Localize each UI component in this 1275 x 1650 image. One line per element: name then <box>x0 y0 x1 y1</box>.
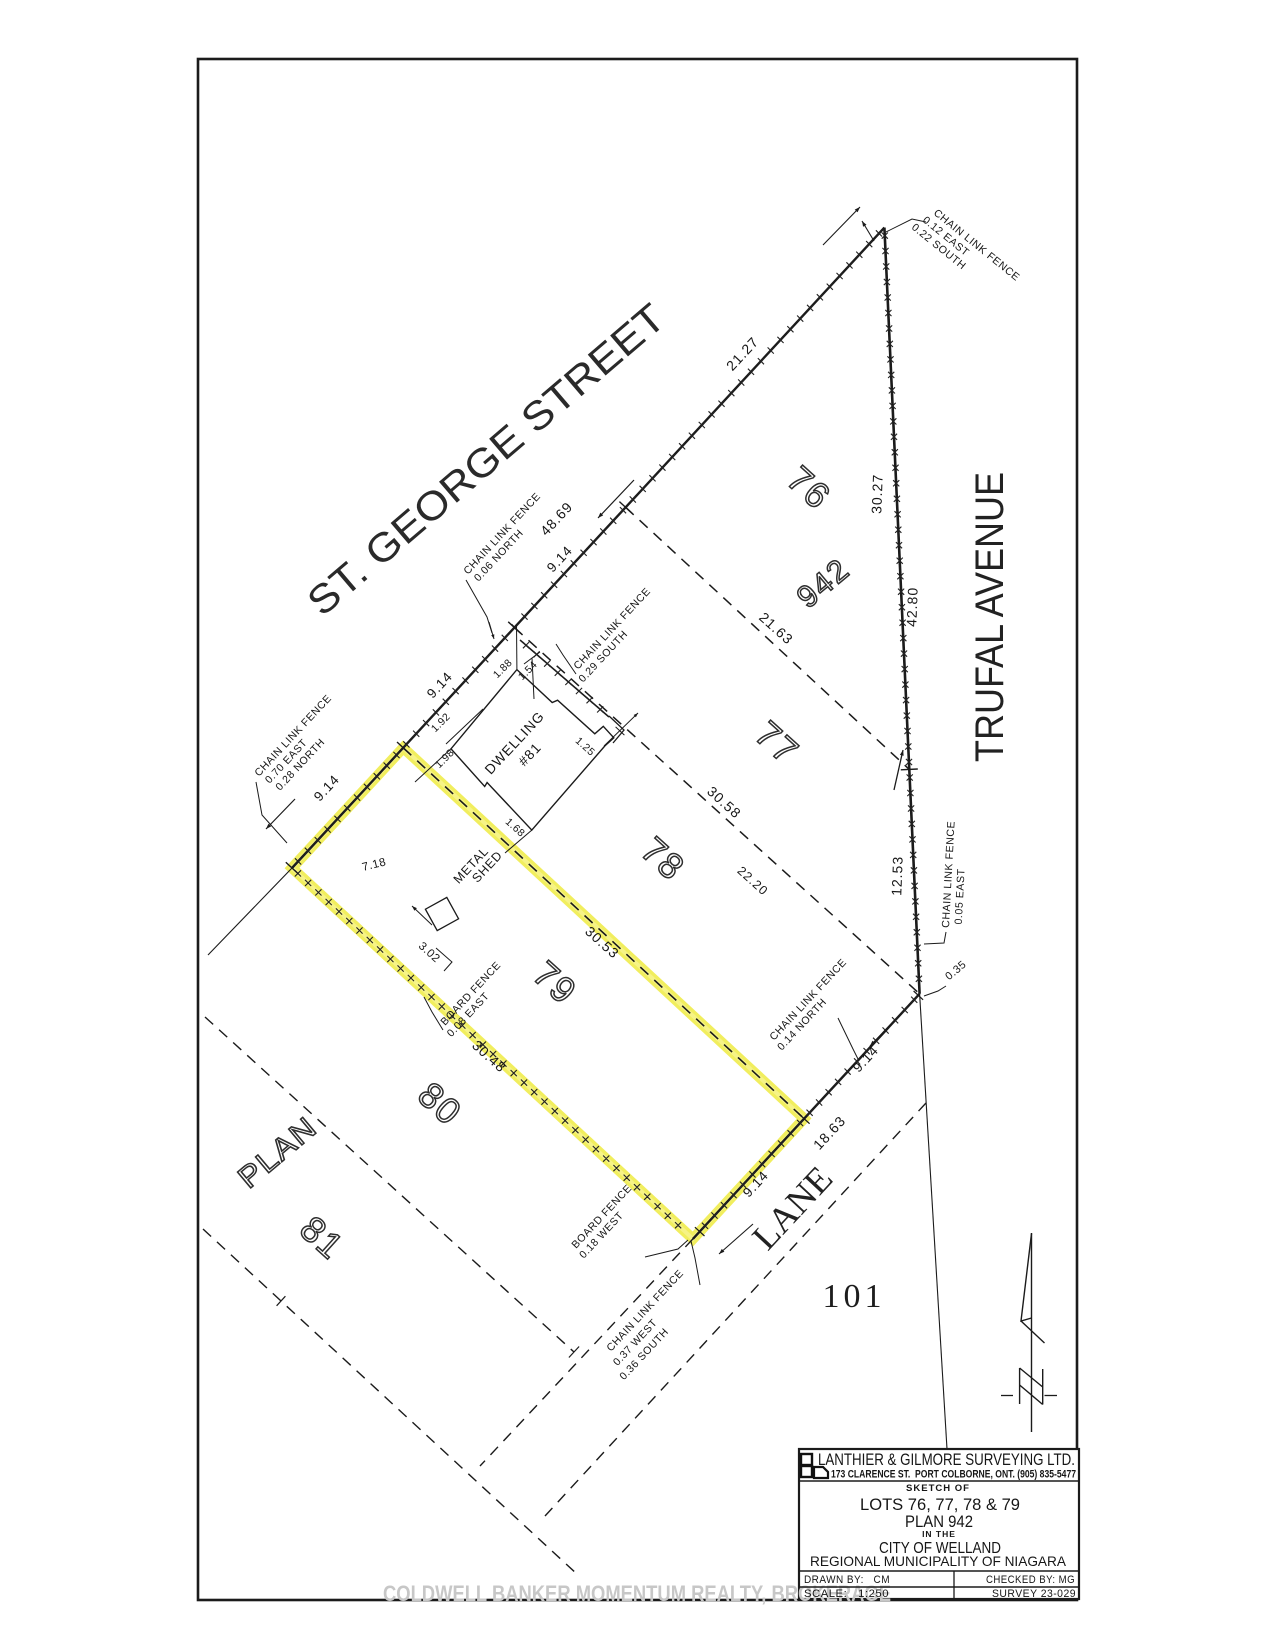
svg-text:173 CLARENCE ST. PORT COLBORN: 173 CLARENCE ST. PORT COLBORNE, ONT. (90… <box>831 1469 1076 1481</box>
svg-text:42.80: 42.80 <box>903 587 920 628</box>
svg-text:REGIONAL MUNICIPALITY OF NIAGA: REGIONAL MUNICIPALITY OF NIAGARA <box>810 1553 1067 1569</box>
svg-text:SCALE: 1:250: SCALE: 1:250 <box>804 1588 889 1600</box>
svg-text:12.53: 12.53 <box>888 856 905 897</box>
svg-text:LANTHIER & GILMORE SURVEYING L: LANTHIER & GILMORE SURVEYING LTD. <box>818 1451 1075 1469</box>
svg-text:CHECKED BY: MG: CHECKED BY: MG <box>986 1574 1075 1586</box>
svg-text:TRUFAL AVENUE: TRUFAL AVENUE <box>968 472 1012 762</box>
svg-text:SKETCH OF: SKETCH OF <box>906 1483 970 1494</box>
svg-text:30.27: 30.27 <box>868 474 885 515</box>
svg-text:101: 101 <box>823 1278 886 1315</box>
svg-text:DRAWN BY: CM: DRAWN BY: CM <box>804 1574 890 1586</box>
svg-text:SURVEY 23-029: SURVEY 23-029 <box>992 1588 1076 1600</box>
svg-text:IN THE: IN THE <box>922 1529 956 1539</box>
